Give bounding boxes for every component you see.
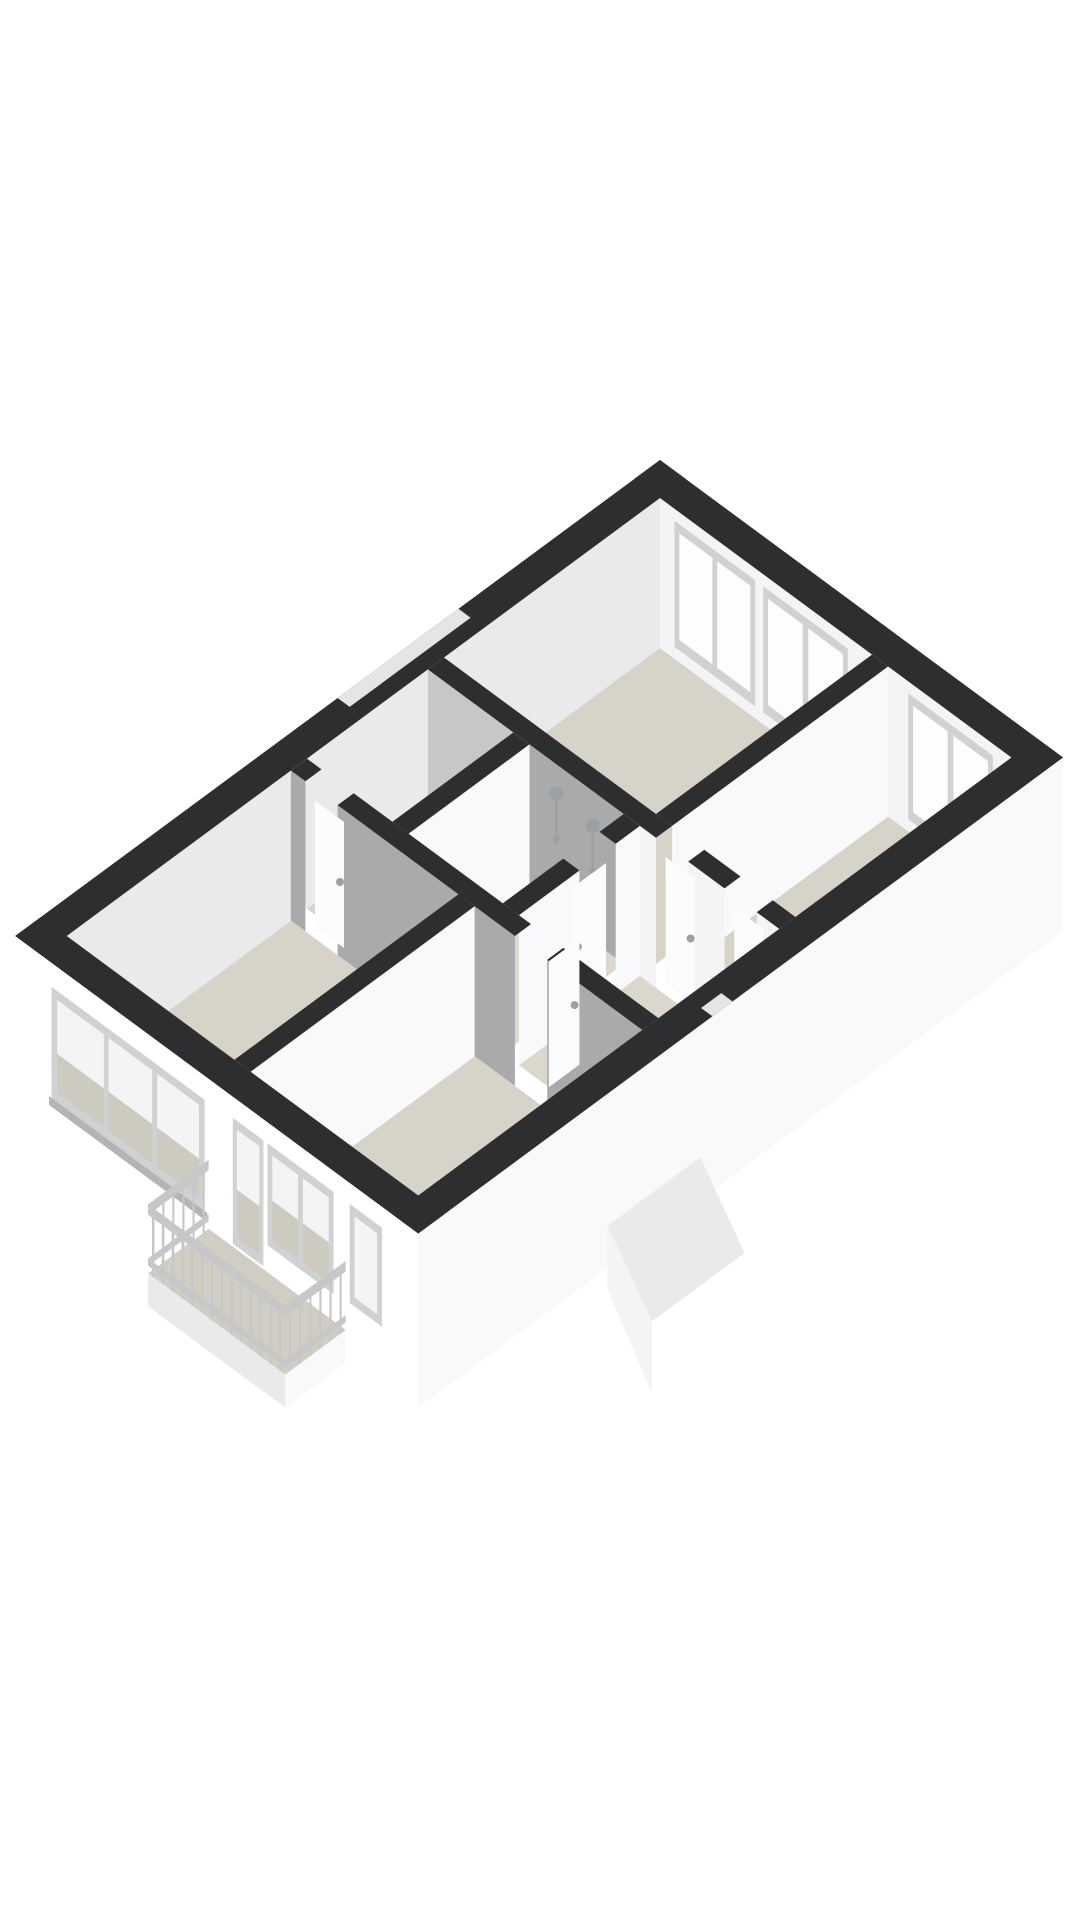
balcony-railing-right-post [309,1297,311,1357]
balcony-railing-front-post [181,1239,183,1299]
big-window-mullion-2 [152,1070,157,1167]
door-bedroom-bottom-handle [571,1001,579,1009]
balcony-railing-right-post [340,1274,342,1334]
balcony-railing-left-post [193,1181,195,1241]
balcony-railing-front-post [230,1276,232,1336]
balcony-railing-front-post [201,1254,203,1314]
floorplan-3d-view [0,0,1080,1920]
balcony-railing-right-post [330,1282,332,1342]
balcony-railing-front-post [270,1305,272,1365]
balcony-railing-front-post [162,1225,164,1285]
door-bedroom-left [315,801,344,949]
shower-head-1 [549,786,563,800]
balcony-railing-front-post [211,1261,213,1321]
door-bedroom-top [666,857,695,1004]
door-bedroom-left-handle [336,878,344,886]
balcony-railing-front-post [250,1290,252,1350]
balcony-railing-front-post [279,1312,281,1372]
balcony-railing-front-post [172,1232,174,1292]
balcony-railing-front-post [191,1247,193,1307]
partition-v3-face-a [616,826,640,994]
balcony-railing-front-post [152,1218,154,1278]
balcony-railing-right-post [289,1312,291,1372]
balcony-railing-front-post [221,1268,223,1328]
h2-face-a [291,771,306,932]
shower-head-2 [586,819,600,833]
balcony-railing-front-post [260,1297,262,1357]
small-window-glass [355,1217,378,1315]
balcony-railing-front-post [240,1283,242,1343]
shower-valve-1 [553,835,560,842]
floorplan-3d-render [0,0,1080,1920]
balcony-railing-right-post [319,1289,321,1349]
balcony-window-mullion [298,1175,303,1263]
big-window-mullion-1 [104,1035,109,1132]
balcony-railing-right-post [299,1304,301,1364]
door-bedroom-bottom-open [549,939,580,1088]
window-a-mullion [712,558,717,668]
balcony-railing-left-post [203,1173,205,1233]
door-bedroom-top-handle [687,935,695,943]
